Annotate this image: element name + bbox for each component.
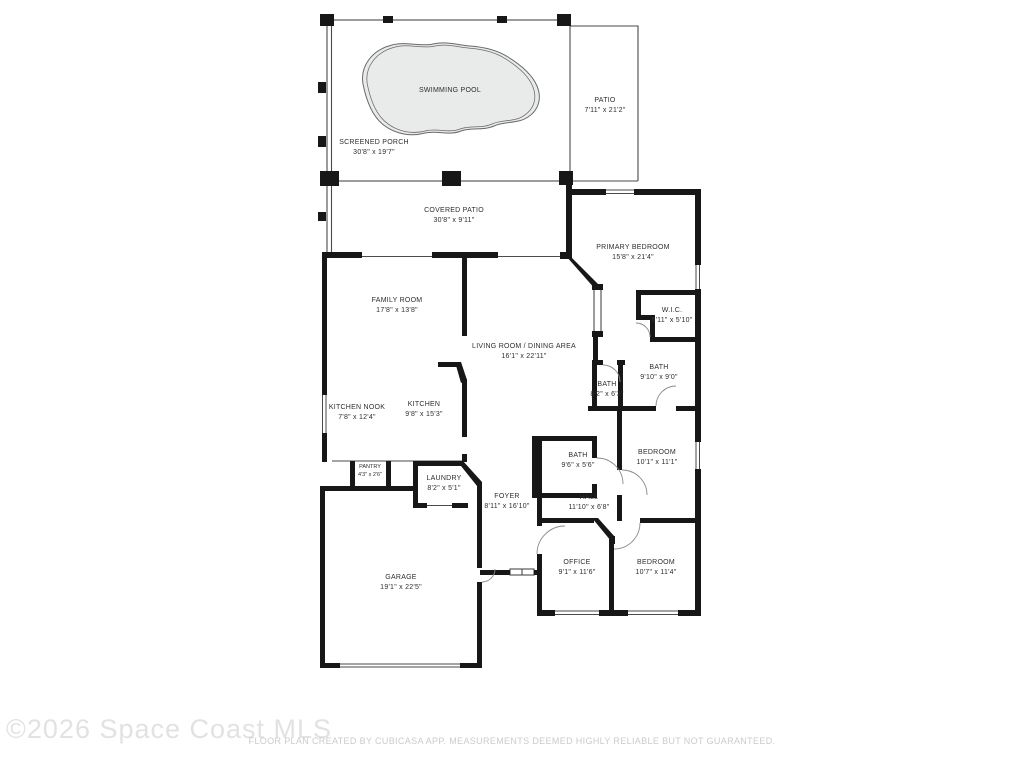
room-dims: 9'8" x 15'3" xyxy=(405,411,443,420)
room-label-foyer: FOYER8'11" x 16'10" xyxy=(484,492,529,512)
room-label-screened-porch: SCREENED PORCH30'8" x 19'7" xyxy=(339,138,409,158)
room-label-bath-hall: BATH9'6" x 5'6" xyxy=(561,451,594,471)
room-dims: 9'10" x 9'0" xyxy=(640,374,678,383)
room-label-bedroom-1: BEDROOM10'1" x 11'1" xyxy=(636,448,677,468)
room-label-living-dining: LIVING ROOM / DINING AREA16'1" x 22'11" xyxy=(472,342,576,362)
room-name: BATH xyxy=(597,380,616,389)
room-label-swimming-pool: SWIMMING POOL xyxy=(419,86,481,96)
room-name: PATIO xyxy=(594,96,615,105)
disclaimer-text: FLOOR PLAN CREATED BY CUBICASA APP. MEAS… xyxy=(0,736,1024,746)
room-name: FOYER xyxy=(494,492,519,501)
room-dims: 9'1" x 11'6" xyxy=(559,569,596,578)
room-dims: 9'6" x 5'6" xyxy=(561,462,594,471)
floorplan-page: SWIMMING POOL SCREENED PORCH30'8" x 19'7… xyxy=(0,0,1024,768)
room-label-wic: W.I.C.6'11" x 5'10" xyxy=(651,306,692,326)
room-name: BEDROOM xyxy=(637,558,675,567)
room-label-family-room: FAMILY ROOM17'8" x 13'8" xyxy=(372,296,423,316)
room-dims: 19'1" x 22'5" xyxy=(380,584,422,593)
room-label-kitchen: KITCHEN9'8" x 15'3" xyxy=(405,400,443,420)
room-label-garage: GARAGE19'1" x 22'5" xyxy=(380,573,422,593)
room-name: OFFICE xyxy=(563,558,590,567)
room-dims: 10'7" x 11'4" xyxy=(635,569,676,578)
room-dims: 7'11" x 21'2" xyxy=(584,107,625,116)
room-name: PRIMARY BEDROOM xyxy=(596,243,670,252)
room-label-primary-bedroom: PRIMARY BEDROOM15'8" x 21'4" xyxy=(596,243,670,263)
room-name: BEDROOM xyxy=(638,448,676,457)
room-dims: 15'8" x 21'4" xyxy=(612,254,654,263)
room-dims: 8'11" x 16'10" xyxy=(484,503,529,512)
room-label-patio: PATIO7'11" x 21'2" xyxy=(584,96,625,116)
room-name: COVERED PATIO xyxy=(424,206,484,215)
room-name: BATH xyxy=(568,451,587,460)
room-label-hall: HALL11'10" x 6'8" xyxy=(568,493,609,513)
room-name: KITCHEN xyxy=(408,400,440,409)
room-name: SCREENED PORCH xyxy=(339,138,409,147)
room-dims: 11'10" x 6'8" xyxy=(568,504,609,513)
room-label-bath-primary: BATH9'10" x 9'0" xyxy=(640,363,678,383)
room-name: W.I.C. xyxy=(662,306,683,315)
room-name: BATH xyxy=(649,363,668,372)
room-name: FAMILY ROOM xyxy=(372,296,423,305)
room-dims: 8'2" x 6'3" xyxy=(590,391,623,400)
room-label-pantry: PANTRY4'3" x 2'6" xyxy=(358,464,382,480)
room-name: KITCHEN NOOK xyxy=(329,403,385,412)
room-name: HALL xyxy=(580,493,599,502)
room-label-office: OFFICE9'1" x 11'6" xyxy=(559,558,596,578)
room-dims: 30'8" x 9'11" xyxy=(433,217,474,226)
room-name: PANTRY xyxy=(359,464,381,471)
room-label-laundry: LAUNDRY8'2" x 5'1" xyxy=(426,474,461,494)
room-dims: 4'3" x 2'6" xyxy=(358,473,382,480)
floorplan-drawing xyxy=(0,0,1024,768)
room-name: GARAGE xyxy=(385,573,416,582)
room-dims: 6'11" x 5'10" xyxy=(651,317,692,326)
room-dims: 30'8" x 19'7" xyxy=(353,149,395,158)
room-dims: 7'8" x 12'4" xyxy=(338,414,376,423)
room-dims: 16'1" x 22'11" xyxy=(501,353,546,362)
room-label-kitchen-nook: KITCHEN NOOK7'8" x 12'4" xyxy=(329,403,385,423)
room-dims: 17'8" x 13'8" xyxy=(376,307,418,316)
room-name: LIVING ROOM / DINING AREA xyxy=(472,342,576,351)
room-name: LAUNDRY xyxy=(426,474,461,483)
room-label-bath-guest: BATH8'2" x 6'3" xyxy=(590,380,623,400)
room-dims: 10'1" x 11'1" xyxy=(636,459,677,468)
room-name: SWIMMING POOL xyxy=(419,86,481,95)
room-dims: 8'2" x 5'1" xyxy=(427,485,460,494)
room-label-covered-patio: COVERED PATIO30'8" x 9'11" xyxy=(424,206,484,226)
room-label-bedroom-2: BEDROOM10'7" x 11'4" xyxy=(635,558,676,578)
